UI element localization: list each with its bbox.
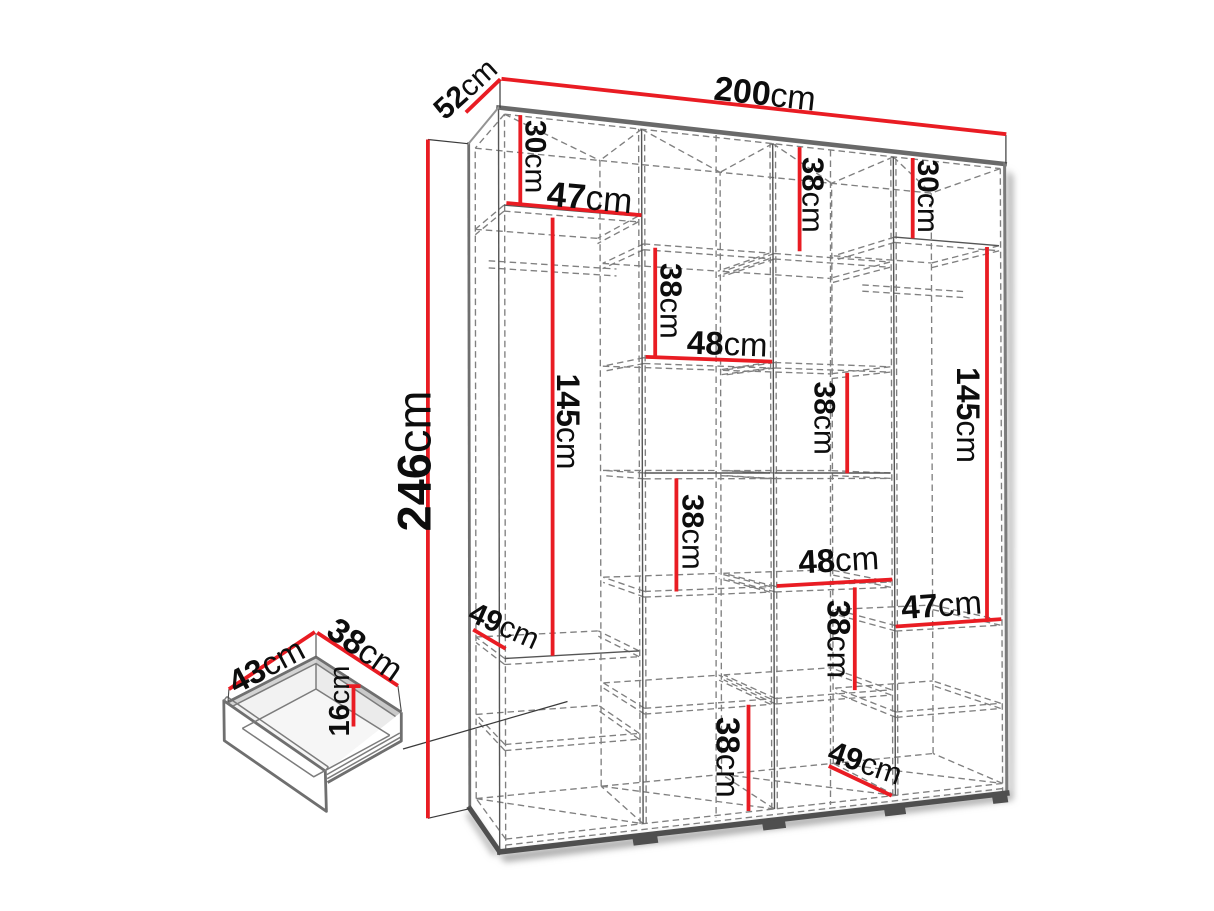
svg-text:38cm: 38cm	[654, 263, 689, 339]
svg-text:38cm: 38cm	[808, 382, 841, 455]
svg-text:48cm: 48cm	[797, 539, 880, 580]
svg-text:47cm: 47cm	[900, 583, 983, 626]
svg-text:38cm: 38cm	[821, 600, 857, 678]
svg-text:38cm: 38cm	[710, 717, 747, 798]
svg-text:38cm: 38cm	[676, 494, 711, 570]
svg-text:47cm: 47cm	[545, 175, 634, 222]
svg-text:30cm: 30cm	[519, 120, 552, 193]
svg-text:38cm: 38cm	[796, 157, 831, 233]
svg-text:30cm: 30cm	[911, 160, 944, 233]
svg-text:16cm: 16cm	[324, 666, 356, 737]
svg-text:48cm: 48cm	[686, 324, 768, 364]
svg-text:145cm: 145cm	[950, 367, 986, 463]
svg-text:145cm: 145cm	[550, 374, 586, 470]
svg-text:246cm: 246cm	[387, 390, 440, 531]
